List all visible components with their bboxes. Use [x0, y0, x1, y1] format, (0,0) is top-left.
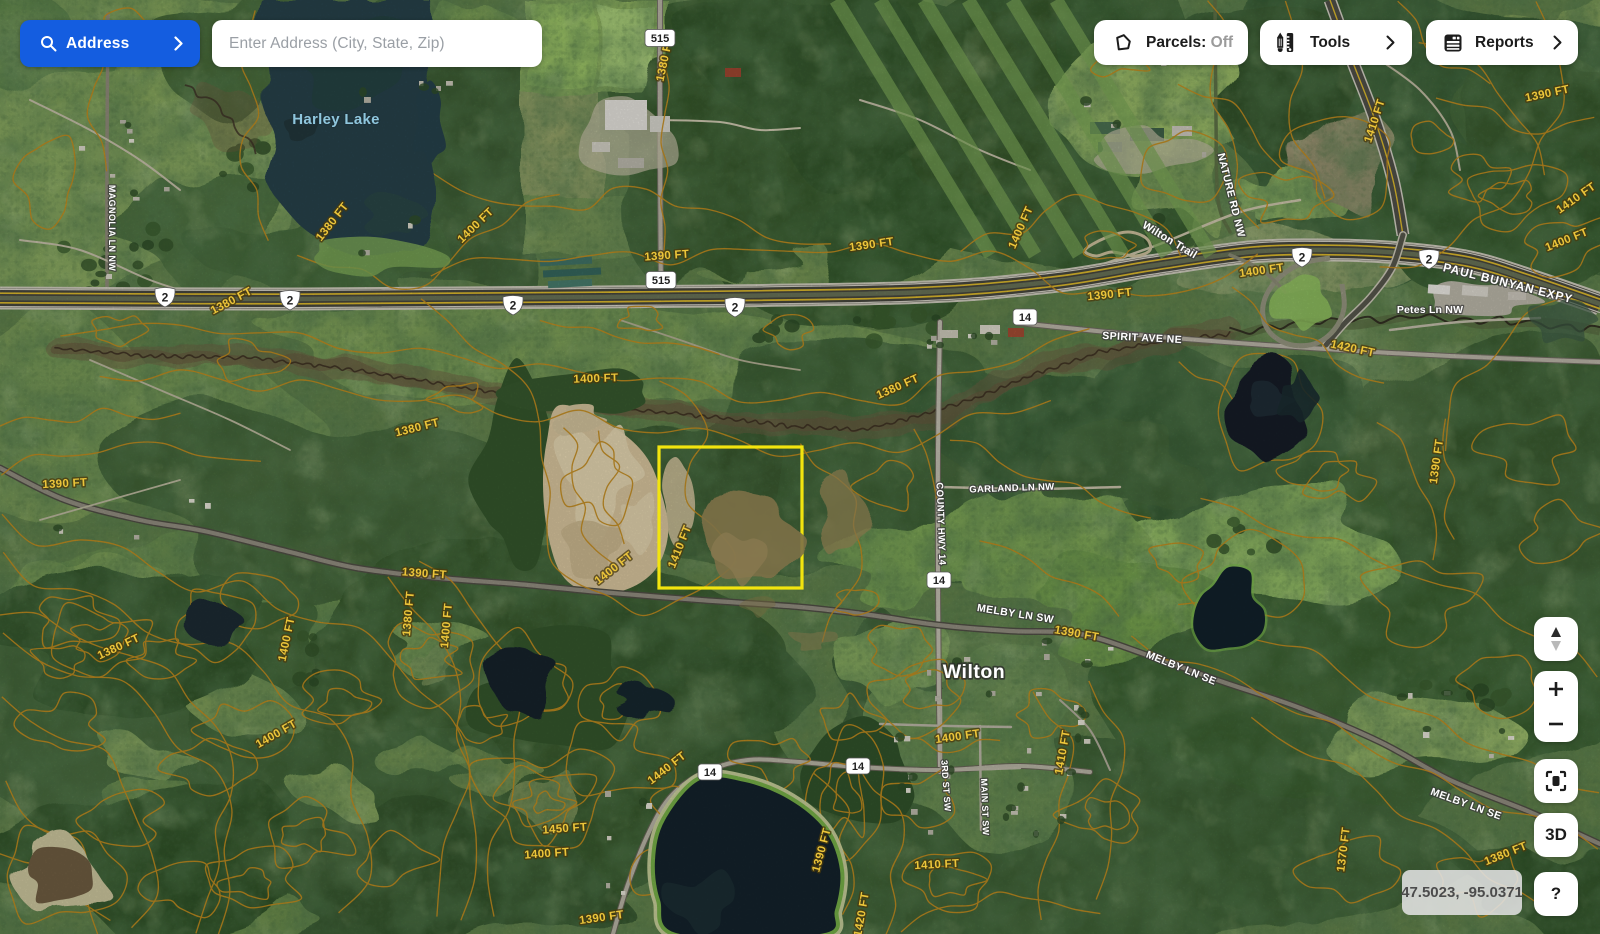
svg-text:2: 2: [732, 301, 739, 315]
svg-text:14: 14: [704, 767, 717, 779]
svg-text:2: 2: [162, 291, 169, 305]
svg-text:14: 14: [852, 761, 865, 773]
svg-text:14: 14: [1019, 312, 1032, 324]
svg-text:515: 515: [652, 275, 670, 287]
svg-text:2: 2: [1426, 253, 1433, 267]
svg-text:1410 FT: 1410 FT: [914, 858, 960, 872]
svg-text:1390 FT: 1390 FT: [42, 477, 88, 491]
svg-text:2: 2: [510, 299, 517, 313]
svg-text:515: 515: [651, 33, 669, 45]
svg-text:Petes Ln NW: Petes Ln NW: [1397, 304, 1463, 316]
svg-text:1400 FT: 1400 FT: [573, 372, 618, 386]
svg-text:2: 2: [1299, 251, 1306, 265]
svg-text:Wilton: Wilton: [943, 661, 1005, 683]
svg-text:MAGNOLIA LN NW: MAGNOLIA LN NW: [107, 185, 117, 271]
svg-text:Harley Lake: Harley Lake: [292, 111, 380, 128]
svg-text:14: 14: [933, 575, 946, 587]
svg-text:MAIN ST SW: MAIN ST SW: [979, 778, 991, 836]
svg-text:2: 2: [287, 294, 294, 308]
